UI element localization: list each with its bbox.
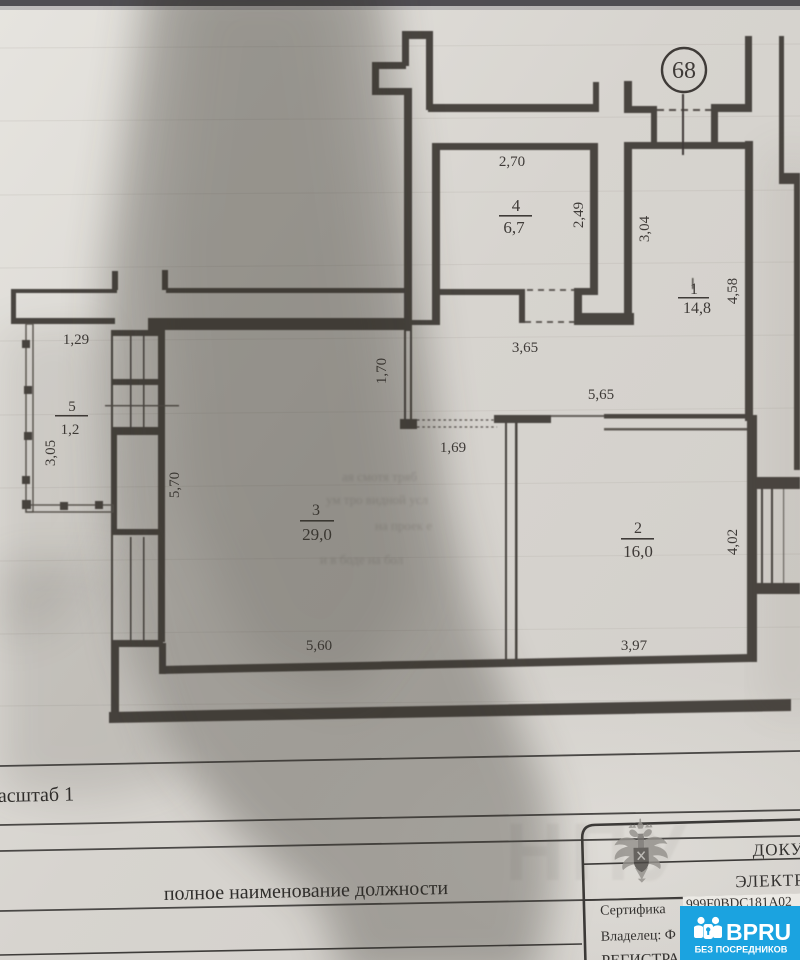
svg-text:1: 1 <box>690 281 698 298</box>
svg-text:БЕЗ ПОСРЕДНИКОВ: БЕЗ ПОСРЕДНИКОВ <box>695 945 788 955</box>
svg-text:4: 4 <box>512 196 521 215</box>
svg-text:Владелец: Ф: Владелец: Ф <box>601 928 676 945</box>
svg-text:14,8: 14,8 <box>683 300 711 317</box>
svg-text:6,7: 6,7 <box>503 218 525 237</box>
svg-text:4,02: 4,02 <box>725 529 741 555</box>
svg-text:3,65: 3,65 <box>512 340 538 356</box>
svg-text:16,0: 16,0 <box>623 542 653 561</box>
svg-text:2: 2 <box>634 520 642 537</box>
svg-text:ЭЛЕКТРО: ЭЛЕКТРО <box>735 870 800 891</box>
svg-text:2,70: 2,70 <box>499 154 525 170</box>
svg-text:3,97: 3,97 <box>621 638 648 654</box>
svg-text:ДОКУМ: ДОКУМ <box>752 839 800 860</box>
svg-text:РЕГИСТРА: РЕГИСТРА <box>601 951 680 960</box>
svg-text:5,65: 5,65 <box>588 387 614 403</box>
svg-text:68: 68 <box>672 58 696 84</box>
svg-text:Сертифика: Сертифика <box>600 902 667 919</box>
svg-text:4,58: 4,58 <box>725 278 741 304</box>
svg-text:2,49: 2,49 <box>571 202 587 228</box>
svg-text:3,04: 3,04 <box>637 215 653 242</box>
svg-text:1,69: 1,69 <box>440 440 466 456</box>
svg-text:BPRU: BPRU <box>726 919 791 945</box>
